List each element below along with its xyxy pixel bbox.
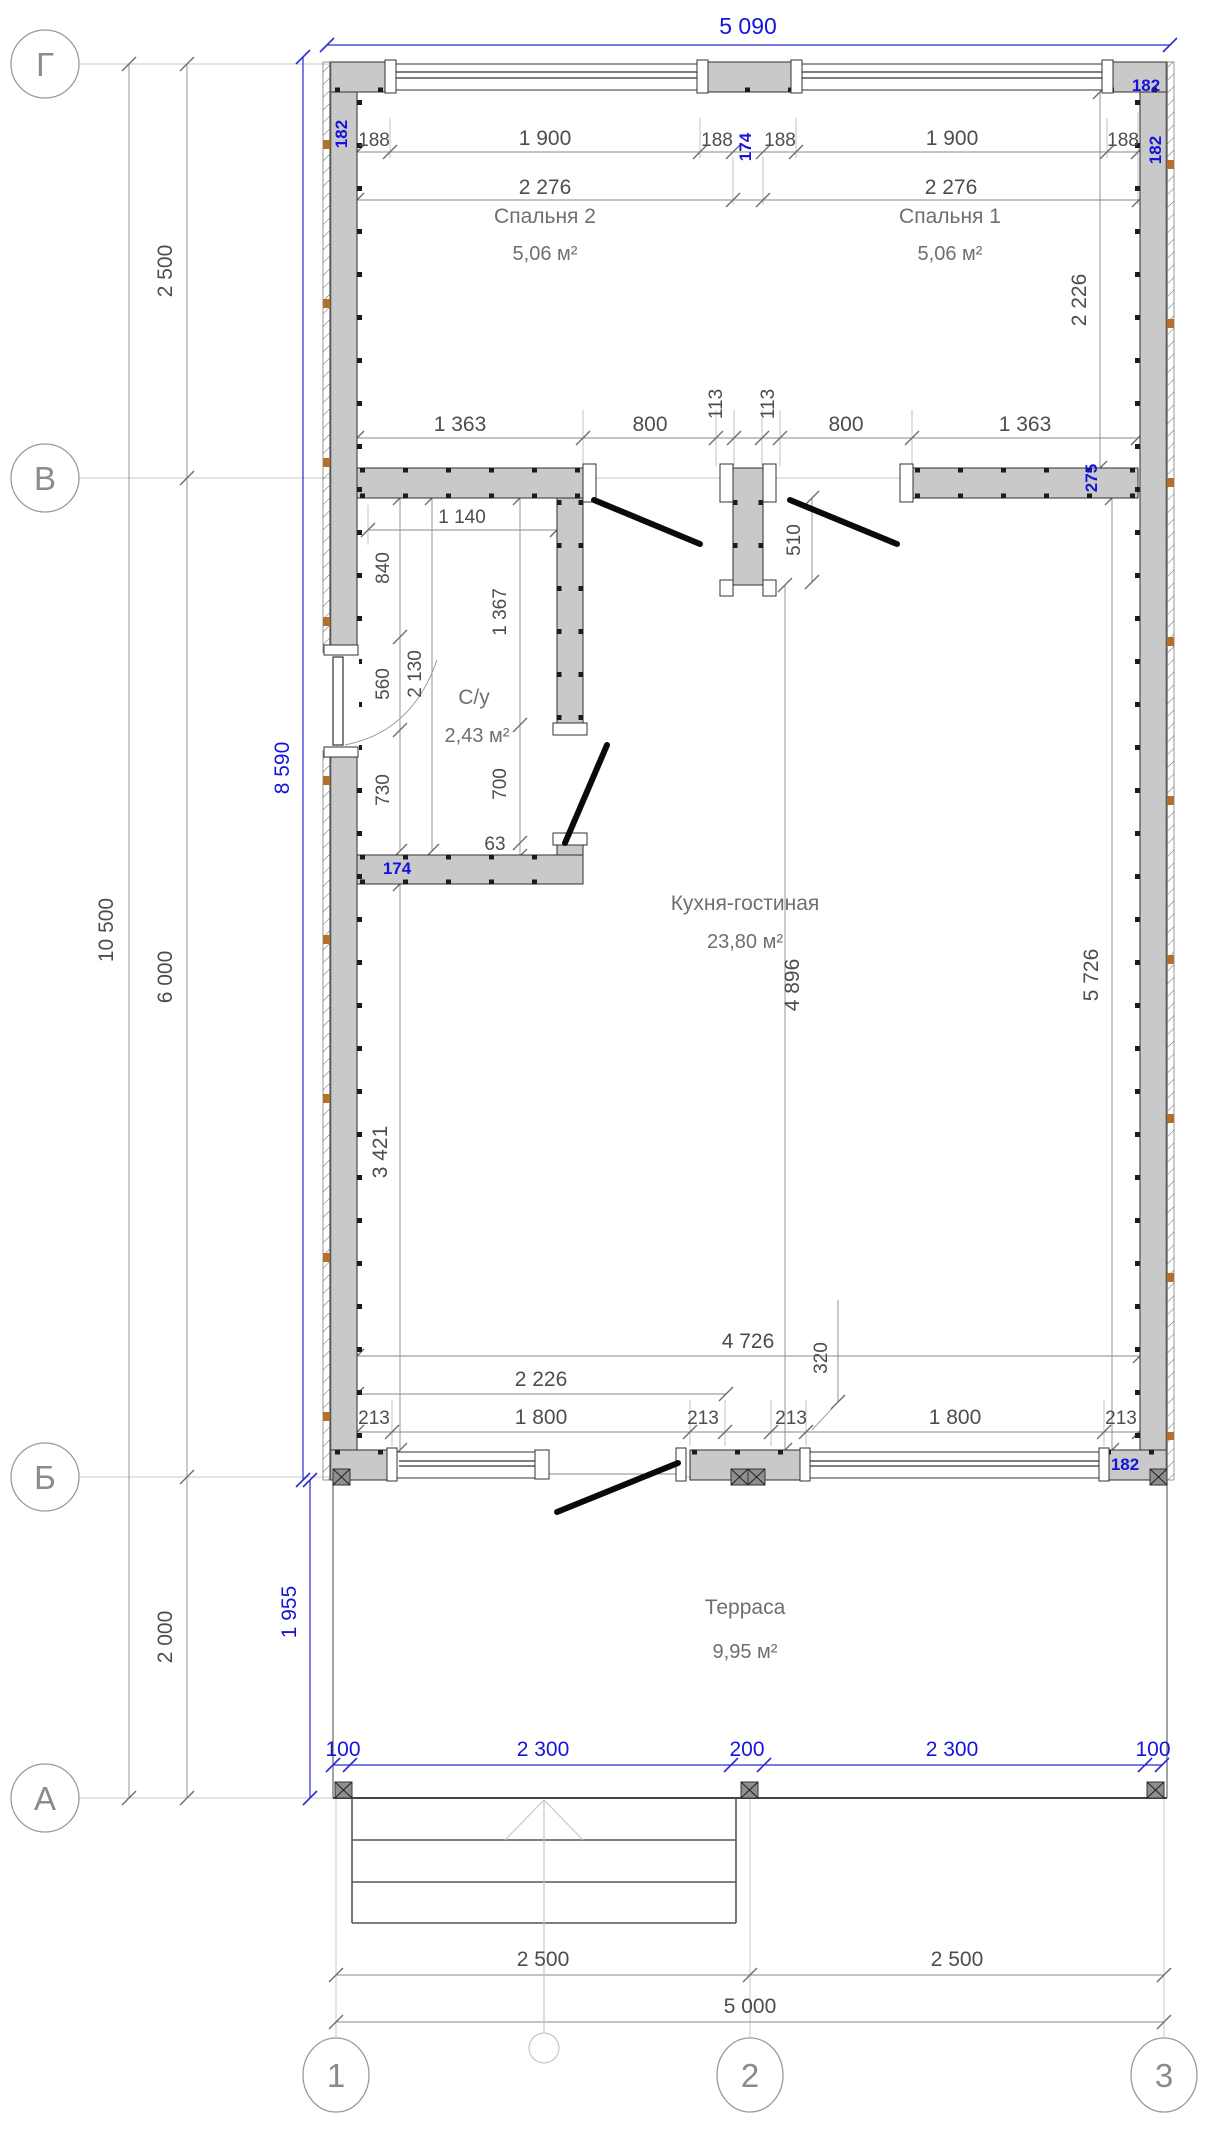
dim-bath-width: 1 140 bbox=[438, 507, 486, 528]
dim-wall-174-top: 174 bbox=[736, 132, 755, 161]
dim-bath-560: 560 bbox=[373, 668, 394, 700]
window-bedroom2 bbox=[390, 64, 700, 90]
dim-bath-700: 700 bbox=[490, 768, 511, 800]
dim-axis-b-a: 2 000 bbox=[154, 1611, 177, 1664]
dim-b2-margin-right: 188 bbox=[701, 130, 733, 151]
dim-axis-1-2: 2 500 bbox=[517, 1948, 570, 1971]
dim-bottom-213-2: 213 bbox=[687, 1408, 719, 1429]
dim-bottom-213-4: 213 bbox=[1105, 1408, 1137, 1429]
room-labels: Спальня 2 5,06 м² Спальня 1 5,06 м² С/у … bbox=[445, 205, 1001, 1663]
room-bedroom2-name: Спальня 2 bbox=[494, 205, 596, 228]
room-kitchen-area: 23,80 м² bbox=[707, 931, 783, 953]
dim-bath-730: 730 bbox=[373, 774, 394, 806]
dim-bath-840: 840 bbox=[373, 552, 394, 584]
blue-dimension-lines bbox=[303, 45, 1170, 1798]
column-icon bbox=[335, 1782, 352, 1798]
wall-hatching bbox=[323, 62, 1174, 1480]
siding-marks bbox=[327, 140, 1171, 1440]
dim-total-height: 10 500 bbox=[95, 898, 118, 962]
dim-jamb-right: 113 bbox=[758, 389, 779, 419]
column-icon bbox=[1150, 1469, 1167, 1485]
room-bedroom1-name: Спальня 1 bbox=[899, 205, 1001, 228]
dim-b1-height: 2 226 bbox=[1068, 274, 1091, 327]
dim-wall-275: 275 bbox=[1082, 464, 1101, 492]
walls bbox=[330, 62, 1167, 1480]
dim-wall-182-br: 182 bbox=[1111, 1455, 1139, 1474]
axis-label-1: 1 bbox=[327, 2057, 345, 2094]
room-bedroom1-area: 5,06 м² bbox=[918, 243, 983, 265]
door-bath-exterior-leaf bbox=[333, 657, 343, 745]
room-terrace-area: 9,95 м² bbox=[713, 1641, 778, 1663]
stud-marks bbox=[335, 90, 1160, 1452]
dim-axis-2-3: 2 500 bbox=[931, 1948, 984, 1971]
column-icon bbox=[741, 1782, 758, 1798]
dim-terrace-2300-r: 2 300 bbox=[926, 1738, 979, 1761]
dim-b1-width: 2 276 bbox=[925, 176, 978, 199]
axis-label-3: 3 bbox=[1155, 2057, 1173, 2094]
dim-terrace-200: 200 bbox=[729, 1738, 764, 1761]
dim-b2-margin-left: 188 bbox=[358, 130, 390, 151]
partition-v-right bbox=[913, 468, 1138, 498]
axis-label-a: А bbox=[34, 1780, 56, 1817]
axis-label-g: Г bbox=[36, 46, 54, 83]
dim-b2-width: 2 276 bbox=[519, 176, 572, 199]
dim-b1-window: 1 900 bbox=[926, 127, 979, 150]
dim-inner-height: 8 590 bbox=[271, 742, 294, 795]
dim-axis-g-v: 2 500 bbox=[154, 245, 177, 298]
dim-terrace-2300-l: 2 300 bbox=[517, 1738, 570, 1761]
dim-kitchen-4726: 4 726 bbox=[722, 1330, 775, 1353]
dim-bath-2130: 2 130 bbox=[405, 650, 426, 698]
floor-plan-page: 188 1 900 188 188 1 900 188 2 276 2 276 … bbox=[0, 0, 1208, 2134]
column-icon bbox=[748, 1469, 765, 1485]
bath-wall-right bbox=[557, 498, 583, 725]
dim-terrace-depth: 1 955 bbox=[278, 1586, 301, 1639]
dimension-texts: 188 1 900 188 188 1 900 188 2 276 2 276 … bbox=[95, 127, 1139, 2018]
axis-label-2: 2 bbox=[741, 2057, 759, 2094]
room-bathroom-area: 2,43 м² bbox=[445, 725, 510, 747]
dim-terrace-100-r: 100 bbox=[1135, 1738, 1170, 1761]
dim-part-left: 1 363 bbox=[434, 413, 487, 436]
dim-jamb-left: 113 bbox=[706, 389, 727, 419]
axis-grid-lines bbox=[79, 64, 1167, 2039]
column-icon bbox=[1147, 1782, 1164, 1798]
door-entrance-opening bbox=[548, 1450, 678, 1479]
room-bedroom2-area: 5,06 м² bbox=[513, 243, 578, 265]
dim-bottom-213-3: 213 bbox=[775, 1408, 807, 1429]
room-kitchen-name: Кухня-гостиная bbox=[671, 892, 820, 915]
openings bbox=[321, 60, 1113, 1481]
dim-stub-510: 510 bbox=[784, 524, 805, 556]
column-icon bbox=[731, 1469, 748, 1485]
blue-dimension-texts: 5 090 8 590 1 955 182 174 182 182 275 17… bbox=[271, 13, 1171, 1761]
room-terrace-name: Терраса bbox=[705, 1596, 786, 1619]
dim-bottom-2226: 2 226 bbox=[515, 1368, 568, 1391]
extension-lines bbox=[357, 112, 1140, 1446]
floor-plan-drawing: 188 1 900 188 188 1 900 188 2 276 2 276 … bbox=[0, 0, 1208, 2134]
dim-kitchen-4896: 4 896 bbox=[781, 959, 804, 1012]
blue-ticks bbox=[296, 38, 1177, 1805]
dim-part-right: 1 363 bbox=[999, 413, 1052, 436]
dim-kitchen-5726: 5 726 bbox=[1080, 949, 1103, 1002]
dim-kitchen-320: 320 bbox=[811, 1342, 832, 1374]
dim-bath-1367: 1 367 bbox=[490, 588, 511, 636]
dim-terrace-100-l: 100 bbox=[325, 1738, 360, 1761]
dim-wall-182-tl: 182 bbox=[332, 120, 351, 148]
dim-overall-width: 5 090 bbox=[719, 13, 777, 39]
dim-bottom-1800-1: 1 800 bbox=[515, 1406, 568, 1429]
dim-kitchen-3421: 3 421 bbox=[369, 1126, 392, 1179]
dimension-lines bbox=[129, 64, 1164, 2022]
dim-bottom-213-1: 213 bbox=[358, 1408, 390, 1429]
room-bathroom-name: С/у bbox=[458, 686, 490, 709]
axis-label-b: Б bbox=[34, 1459, 56, 1496]
wall-right bbox=[1140, 62, 1167, 1480]
dim-wall-174-bath: 174 bbox=[383, 859, 412, 878]
axis-label-v: В bbox=[34, 460, 56, 497]
dimension-ticks bbox=[122, 57, 1171, 2029]
door-bedroom2-leaf bbox=[594, 500, 700, 544]
partition-v-left bbox=[357, 468, 583, 498]
wall-left bbox=[330, 62, 357, 1480]
dim-bath-63: 63 bbox=[484, 834, 505, 855]
dim-door-left: 800 bbox=[632, 413, 667, 436]
door-bathroom-leaf bbox=[565, 745, 607, 843]
axis-labels: Г В Б А 1 2 3 bbox=[34, 46, 1173, 2094]
window-bottom-right bbox=[806, 1452, 1104, 1478]
dim-axis-1-3: 5 000 bbox=[724, 1995, 777, 2018]
column-icon bbox=[333, 1469, 350, 1485]
door-leaves bbox=[557, 500, 897, 1512]
dim-b2-window: 1 900 bbox=[519, 127, 572, 150]
axis-bubbles bbox=[11, 30, 1197, 2112]
dim-door-right: 800 bbox=[828, 413, 863, 436]
dim-b1-margin-right: 188 bbox=[1107, 130, 1139, 151]
window-bottom-left bbox=[397, 1452, 541, 1478]
dim-bottom-1800-2: 1 800 bbox=[929, 1406, 982, 1429]
partition-center-stub bbox=[733, 468, 763, 585]
dim-b1-margin-left: 188 bbox=[764, 130, 796, 151]
window-bedroom1 bbox=[796, 64, 1107, 90]
dim-wall-182-tr-h: 182 bbox=[1132, 76, 1160, 95]
door-bedroom1-leaf bbox=[790, 500, 897, 544]
dim-wall-182-tr-v: 182 bbox=[1146, 136, 1165, 164]
dim-axis-v-b: 6 000 bbox=[154, 951, 177, 1004]
